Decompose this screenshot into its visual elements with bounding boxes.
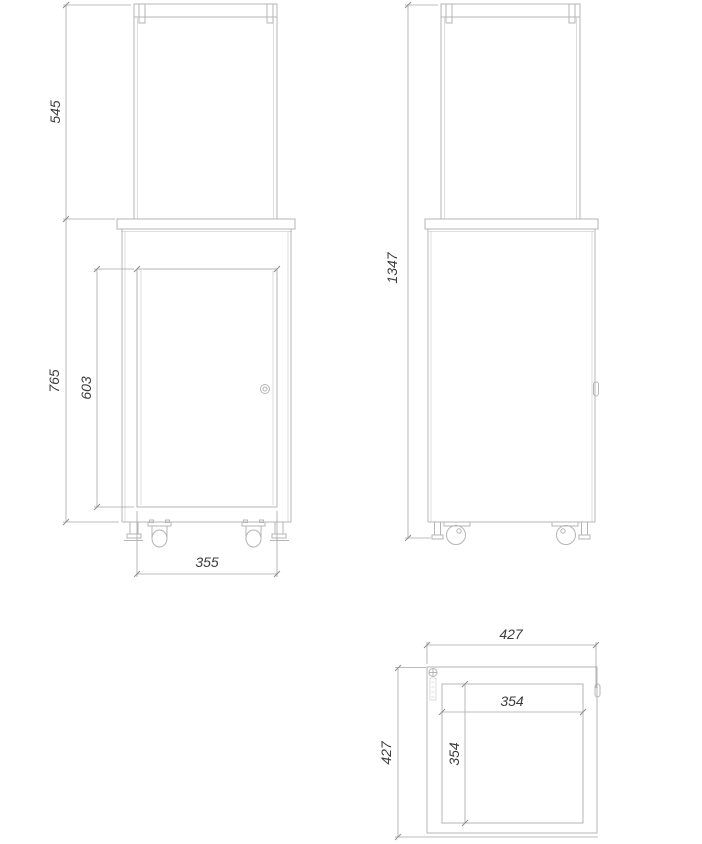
front-right-foot: [270, 522, 289, 541]
side-left-caster: [444, 522, 470, 545]
front-glass-enclosure: [134, 4, 277, 219]
caster-wheel: [447, 526, 466, 545]
side-right-foot: [579, 522, 590, 539]
glass-corner-post-left: [139, 4, 145, 23]
front-left-foot: [124, 522, 143, 541]
caster-plate-tab: [260, 520, 264, 523]
glass-top-frame: [134, 4, 277, 17]
caster-hub: [457, 529, 461, 533]
glass-top-frame: [441, 4, 580, 17]
dim-label-outer-width: 427: [499, 626, 524, 642]
caster-plate-tab: [166, 520, 170, 523]
dim-front-door-height: 603: [78, 266, 134, 510]
dim-front-heights: 545 765: [46, 2, 131, 525]
dim-top-outer-depth: 427: [378, 665, 598, 840]
door-lock-knob-center: [263, 387, 267, 391]
front-door: [134, 266, 280, 507]
patio-heater-drawing: 545 765 603 355: [0, 0, 702, 844]
side-glass-enclosure: [441, 4, 580, 219]
glass-corner-post-right: [267, 4, 273, 23]
dim-label-inner-depth: 354: [446, 742, 462, 766]
foot-plate: [127, 534, 141, 538]
top-control-valve-detail: [429, 668, 438, 700]
door-hinge-bump: [594, 382, 599, 396]
base-top-plate: [425, 219, 598, 229]
foot-plate: [432, 535, 443, 539]
caster-plate-tab: [150, 520, 154, 523]
foot-plate: [272, 534, 286, 538]
dim-label-glass-height: 545: [47, 100, 63, 124]
dim-label-body-height: 765: [46, 369, 62, 393]
foot-plate: [579, 535, 590, 539]
caster-plate-tab: [244, 520, 248, 523]
dim-label-total-height: 1347: [384, 251, 400, 283]
dim-side-total-height: 1347: [384, 2, 438, 541]
caster-hub: [561, 529, 565, 533]
foot-stem: [435, 522, 441, 535]
dim-label-door-height: 603: [78, 376, 94, 400]
front-right-caster: [242, 520, 265, 547]
base-top-plate: [117, 219, 295, 229]
door-panel: [137, 269, 277, 507]
caster-wheel: [246, 530, 261, 547]
foot-stem: [275, 522, 283, 534]
dim-label-outer-depth: 427: [378, 740, 394, 765]
front-left-caster: [148, 520, 171, 547]
side-base-cabinet: [425, 219, 599, 522]
dim-label-door-width: 355: [195, 554, 219, 570]
top-view: 427 427 354 354: [378, 626, 600, 840]
glass-corner-post-left: [446, 4, 452, 23]
foot-stem: [582, 522, 588, 535]
glass-corner-post-right: [569, 4, 575, 23]
front-view: 545 765 603 355: [46, 2, 295, 577]
side-view: 1347: [384, 2, 599, 545]
side-right-caster: [552, 522, 578, 545]
front-base-cabinet: [117, 219, 295, 522]
caster-wheel: [557, 526, 576, 545]
dim-top-inner-width: 354: [439, 693, 586, 715]
technical-drawing-sheet: 545 765 603 355: [0, 0, 702, 844]
dim-top-inner-depth: 354: [446, 681, 468, 826]
dim-top-outer-width: 427: [424, 626, 599, 688]
dim-front-door-width: 355: [134, 511, 280, 577]
door-lock-knob: [261, 385, 270, 394]
dim-label-inner-width: 354: [500, 693, 524, 709]
caster-wheel: [152, 530, 167, 547]
side-left-foot: [432, 522, 443, 539]
